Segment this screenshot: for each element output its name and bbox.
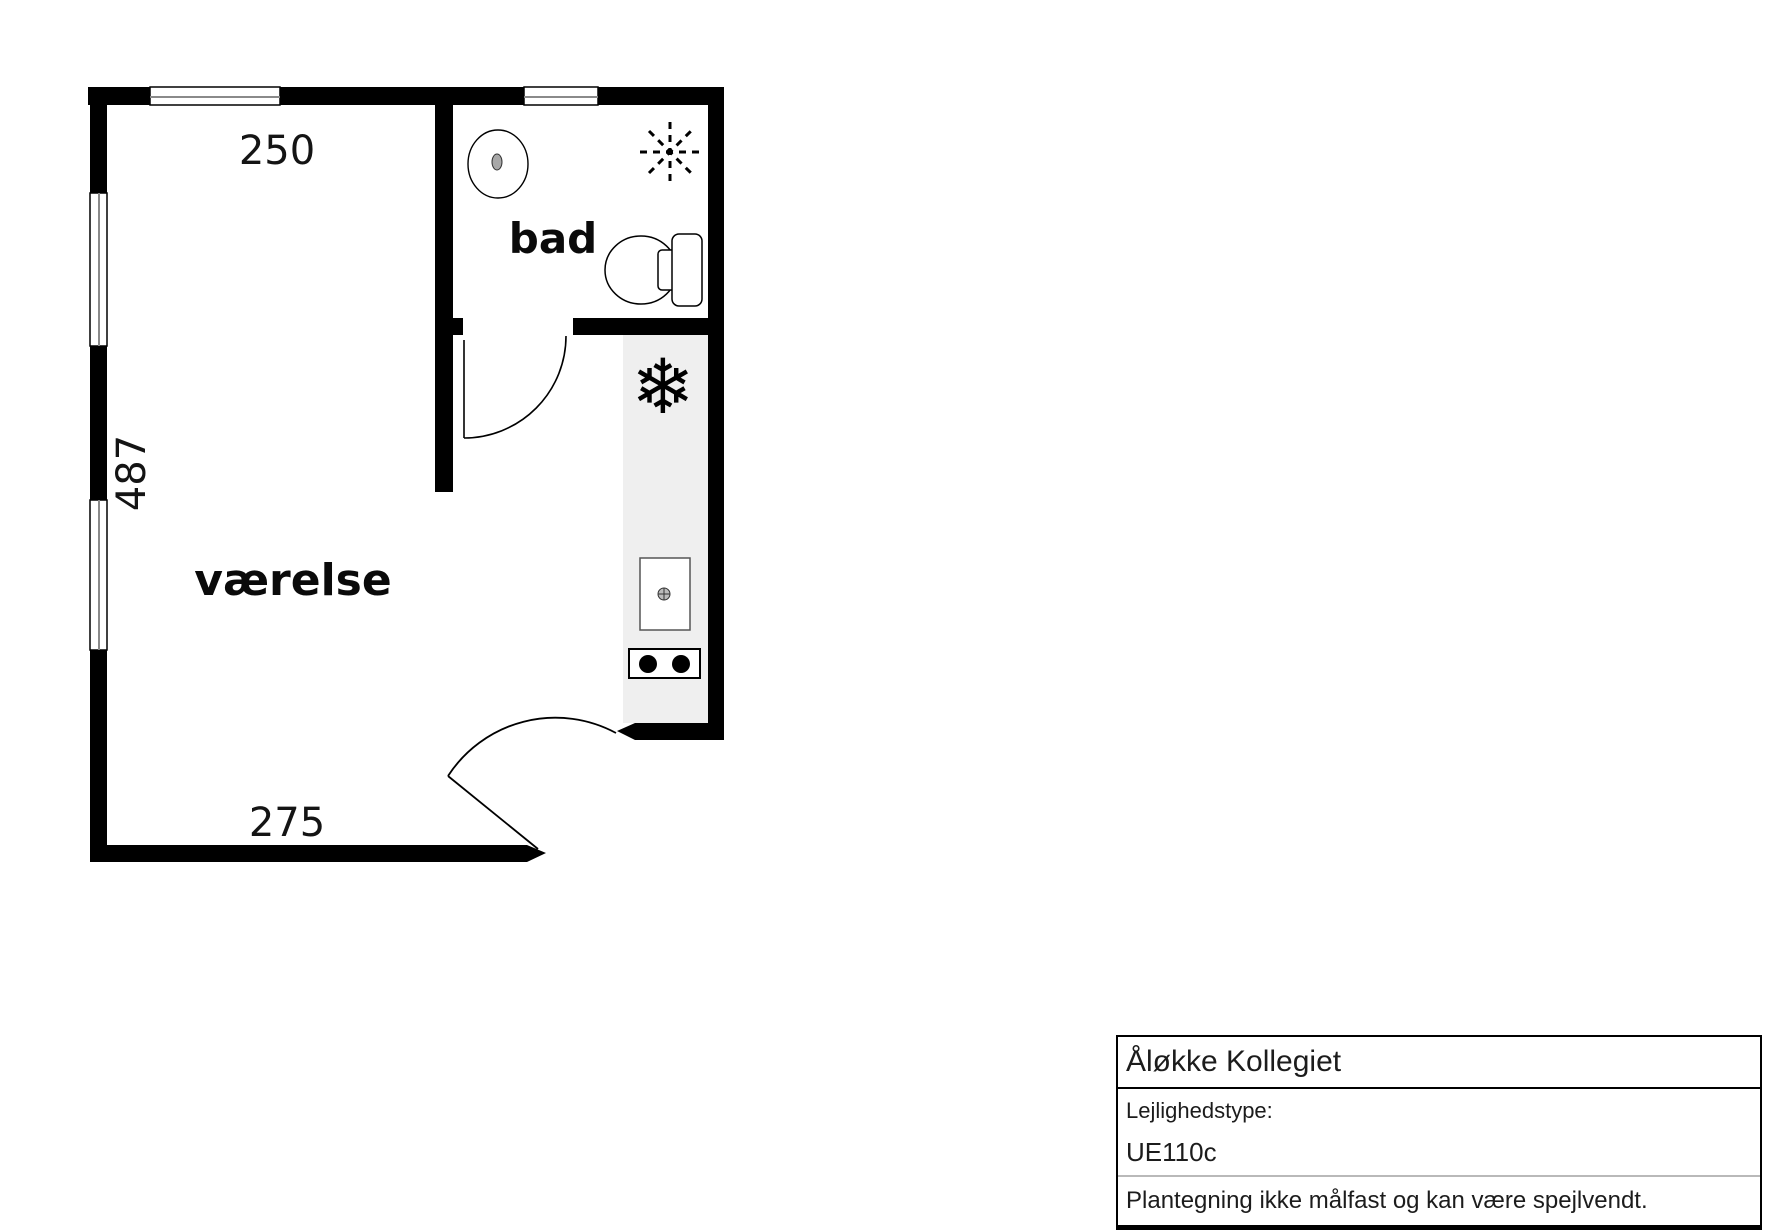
freezer-snowflake-icon: ❄ [631, 342, 695, 431]
ventilation-fan-icon [640, 122, 700, 182]
info-box-type-label: Lejlighedstype: [1126, 1089, 1760, 1125]
wall-room-bath [435, 105, 453, 492]
info-box-type-section: Lejlighedstype: UE110c [1118, 1089, 1760, 1177]
toilet-cistern [672, 234, 702, 306]
bath-door [464, 336, 566, 438]
wall-right [708, 87, 724, 740]
bath-label: bad [509, 214, 597, 263]
wall-kitchen-bottom-end-cap [617, 723, 635, 740]
floorplan-page: ❄ 250 487 275 bad værelse Åløkke Kollegi… [0, 0, 1776, 1232]
toilet-icon [605, 234, 702, 306]
entrance-door [448, 718, 616, 849]
room-label: værelse [194, 555, 391, 606]
info-box-type-value: UE110c [1126, 1125, 1760, 1167]
info-box-title: Åløkke Kollegiet [1118, 1037, 1760, 1089]
stove-burner-left [639, 655, 657, 673]
dimension-bottom: 275 [249, 800, 325, 846]
dimension-left: 487 [109, 435, 155, 511]
bath-door-swing-arc [464, 336, 566, 438]
wall-bath-bottom-stub [435, 318, 463, 335]
info-box: Åløkke Kollegiet Lejlighedstype: UE110c … [1116, 1035, 1762, 1230]
washbasin-drain-icon [492, 154, 502, 170]
stove-burner-right [672, 655, 690, 673]
entrance-door-leaf [448, 776, 538, 849]
dimension-top: 250 [239, 128, 315, 174]
wall-kitchen-bottom [635, 723, 724, 740]
wall-bottom [90, 845, 527, 862]
info-box-disclaimer: Plantegning ikke målfast og kan være spe… [1118, 1177, 1760, 1225]
entrance-door-swing-arc [448, 718, 616, 776]
wall-bath-bottom [573, 318, 708, 335]
